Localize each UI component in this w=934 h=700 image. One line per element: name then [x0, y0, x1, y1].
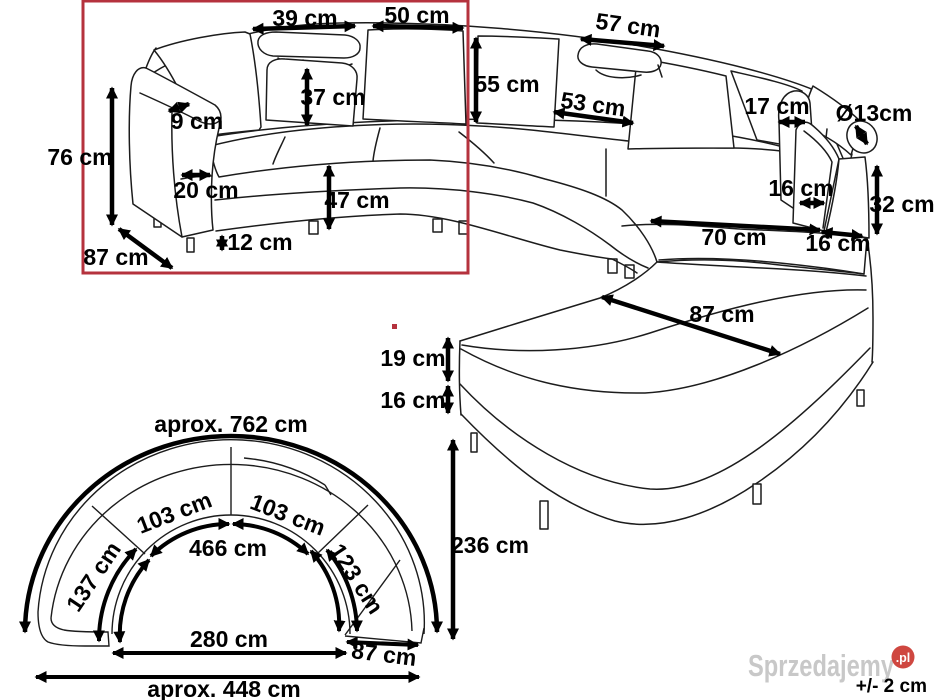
svg-text:.pl: .pl: [896, 651, 911, 665]
svg-text:39 cm: 39 cm: [272, 5, 337, 31]
svg-text:87 cm: 87 cm: [689, 301, 754, 327]
svg-text:19 cm: 19 cm: [380, 345, 445, 371]
svg-text:20 cm: 20 cm: [173, 177, 238, 203]
svg-text:236 cm: 236 cm: [451, 532, 529, 558]
svg-text:37 cm: 37 cm: [300, 84, 365, 110]
svg-text:76 cm: 76 cm: [47, 144, 112, 170]
svg-text:+/- 2 cm: +/- 2 cm: [856, 676, 927, 697]
svg-text:103 cm: 103 cm: [133, 486, 215, 538]
svg-text:16 cm: 16 cm: [380, 387, 445, 413]
svg-text:aprox. 762 cm: aprox. 762 cm: [154, 411, 307, 437]
svg-text:16 cm: 16 cm: [805, 230, 870, 256]
svg-text:57 cm: 57 cm: [594, 8, 662, 43]
svg-text:16 cm: 16 cm: [768, 175, 833, 201]
svg-text:87 cm: 87 cm: [83, 244, 148, 270]
svg-text:466 cm: 466 cm: [189, 535, 267, 561]
svg-text:32 cm: 32 cm: [869, 191, 934, 217]
svg-text:aprox. 448 cm: aprox. 448 cm: [147, 676, 300, 700]
svg-text:70 cm: 70 cm: [701, 224, 766, 250]
svg-text:55 cm: 55 cm: [474, 71, 539, 97]
svg-text:50 cm: 50 cm: [384, 2, 449, 28]
svg-text:280 cm: 280 cm: [190, 626, 268, 652]
svg-text:103 cm: 103 cm: [247, 488, 329, 540]
svg-text:9 cm: 9 cm: [171, 108, 223, 134]
svg-text:12 cm: 12 cm: [227, 229, 292, 255]
svg-text:17 cm: 17 cm: [744, 93, 809, 119]
svg-text:Ø13cm: Ø13cm: [836, 100, 913, 126]
svg-text:47 cm: 47 cm: [324, 187, 389, 213]
svg-text:123 cm: 123 cm: [325, 539, 389, 619]
